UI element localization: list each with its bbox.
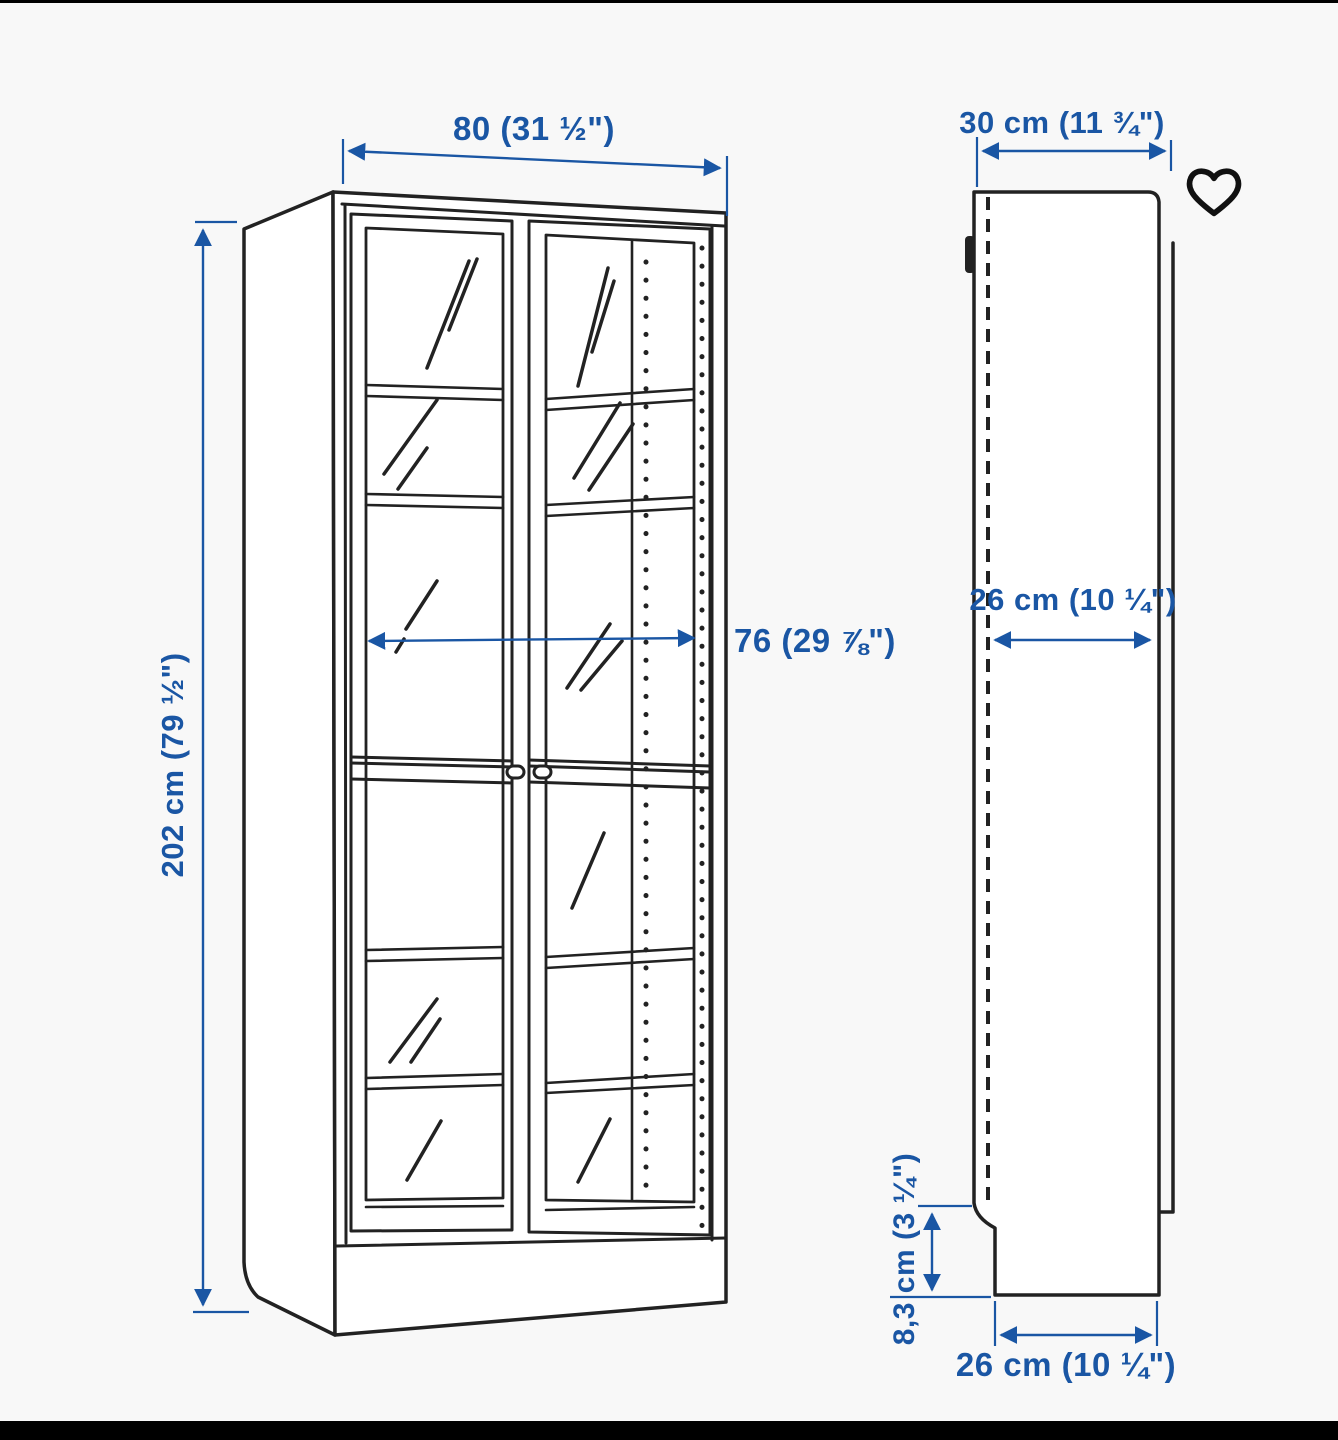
door-front-edge — [1160, 243, 1173, 1212]
bottom-letterbox-bar — [0, 1421, 1338, 1440]
right-door-knob — [534, 766, 551, 778]
plinth-height-label: 8,3 cm (3 ¼") — [888, 1153, 921, 1345]
side-inner-depth-label: 26 cm (10 ¼") — [969, 582, 1176, 617]
front-inner-width-label: 76 (29 ⅞") — [734, 622, 896, 659]
favorite-button[interactable] — [1184, 166, 1244, 222]
side-view-drawing — [965, 192, 1173, 1295]
front-height-dimension: 202 cm (79 ½") — [155, 222, 249, 1312]
wall-bracket — [965, 236, 975, 273]
front-view-drawing — [244, 192, 726, 1335]
front-width-label: 80 (31 ½") — [453, 110, 615, 147]
side-depth-dimension: 30 cm (11 ¾") — [959, 105, 1171, 187]
product-dimension-diagram: 80 (31 ½") 202 cm (79 ½") 76 (29 ⅞") 30 … — [0, 0, 1338, 1440]
left-door-knob — [507, 766, 524, 778]
dimension-drawing: 80 (31 ½") 202 cm (79 ½") 76 (29 ⅞") 30 … — [0, 0, 1338, 1440]
side-bottom-depth-label: 26 cm (10 ¼") — [956, 1346, 1176, 1383]
cabinet-side-panel — [244, 192, 335, 1335]
front-height-label: 202 cm (79 ½") — [155, 652, 190, 877]
side-bottom-depth-dimension: 26 cm (10 ¼") — [956, 1301, 1176, 1383]
heart-icon — [1184, 166, 1244, 222]
side-depth-label: 30 cm (11 ¾") — [959, 105, 1165, 140]
side-profile — [974, 192, 1159, 1295]
